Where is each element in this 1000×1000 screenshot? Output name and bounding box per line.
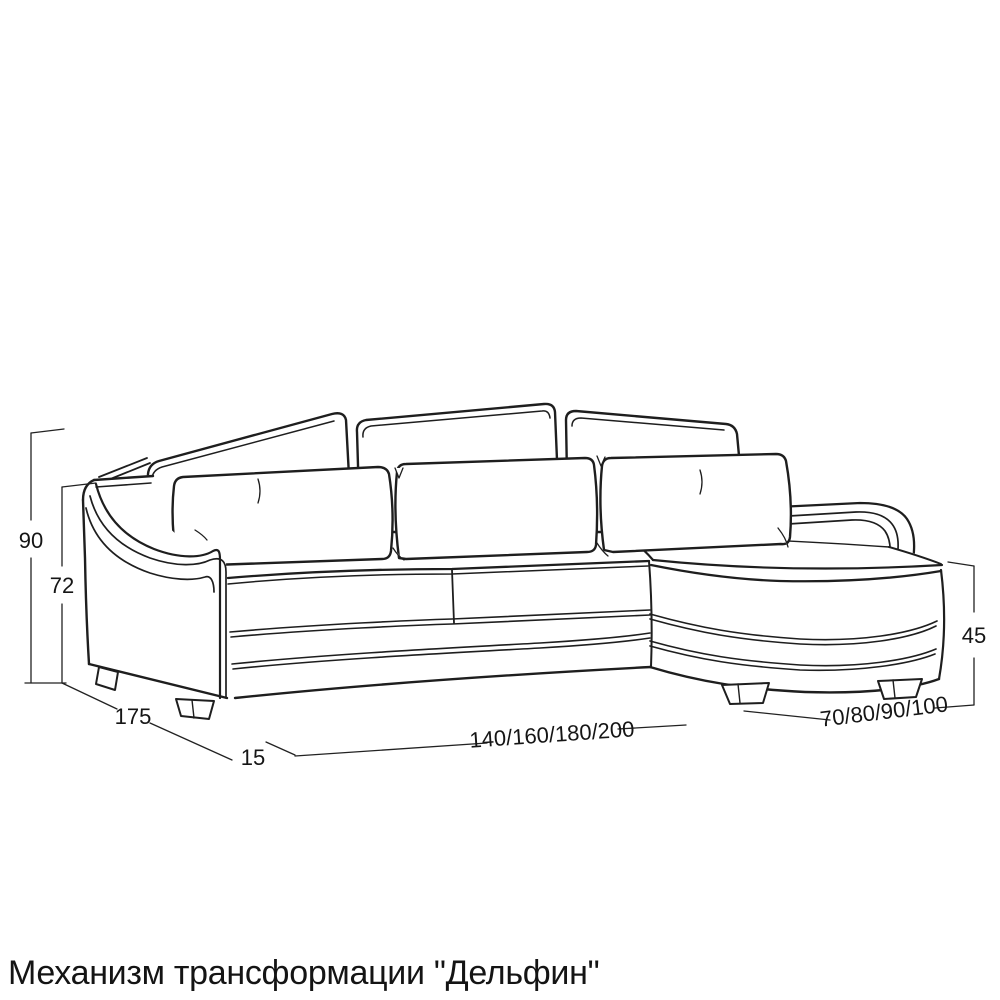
dimension-label-depth: 175 [115, 704, 152, 729]
dimension-label-length-options: 140/160/180/200 [469, 716, 636, 752]
dimension-label-armrest-width: 15 [241, 745, 265, 770]
main-front-band [228, 561, 652, 698]
chaise-front [650, 562, 944, 693]
caption-transformation-mechanism: Механизм трансформации "Дельфин" [8, 954, 599, 993]
sofa-outline [83, 404, 944, 719]
sofa-technical-drawing: 90 72 175 15 140/160/180/200 70/80/90/10… [0, 0, 1000, 1000]
dimension-label-total-height: 90 [19, 528, 43, 553]
dimension-label-armrest-height: 72 [50, 573, 74, 598]
sofa-dimension-diagram: 90 72 175 15 140/160/180/200 70/80/90/10… [0, 0, 1000, 1000]
dimension-label-seat-height: 45 [962, 623, 986, 648]
